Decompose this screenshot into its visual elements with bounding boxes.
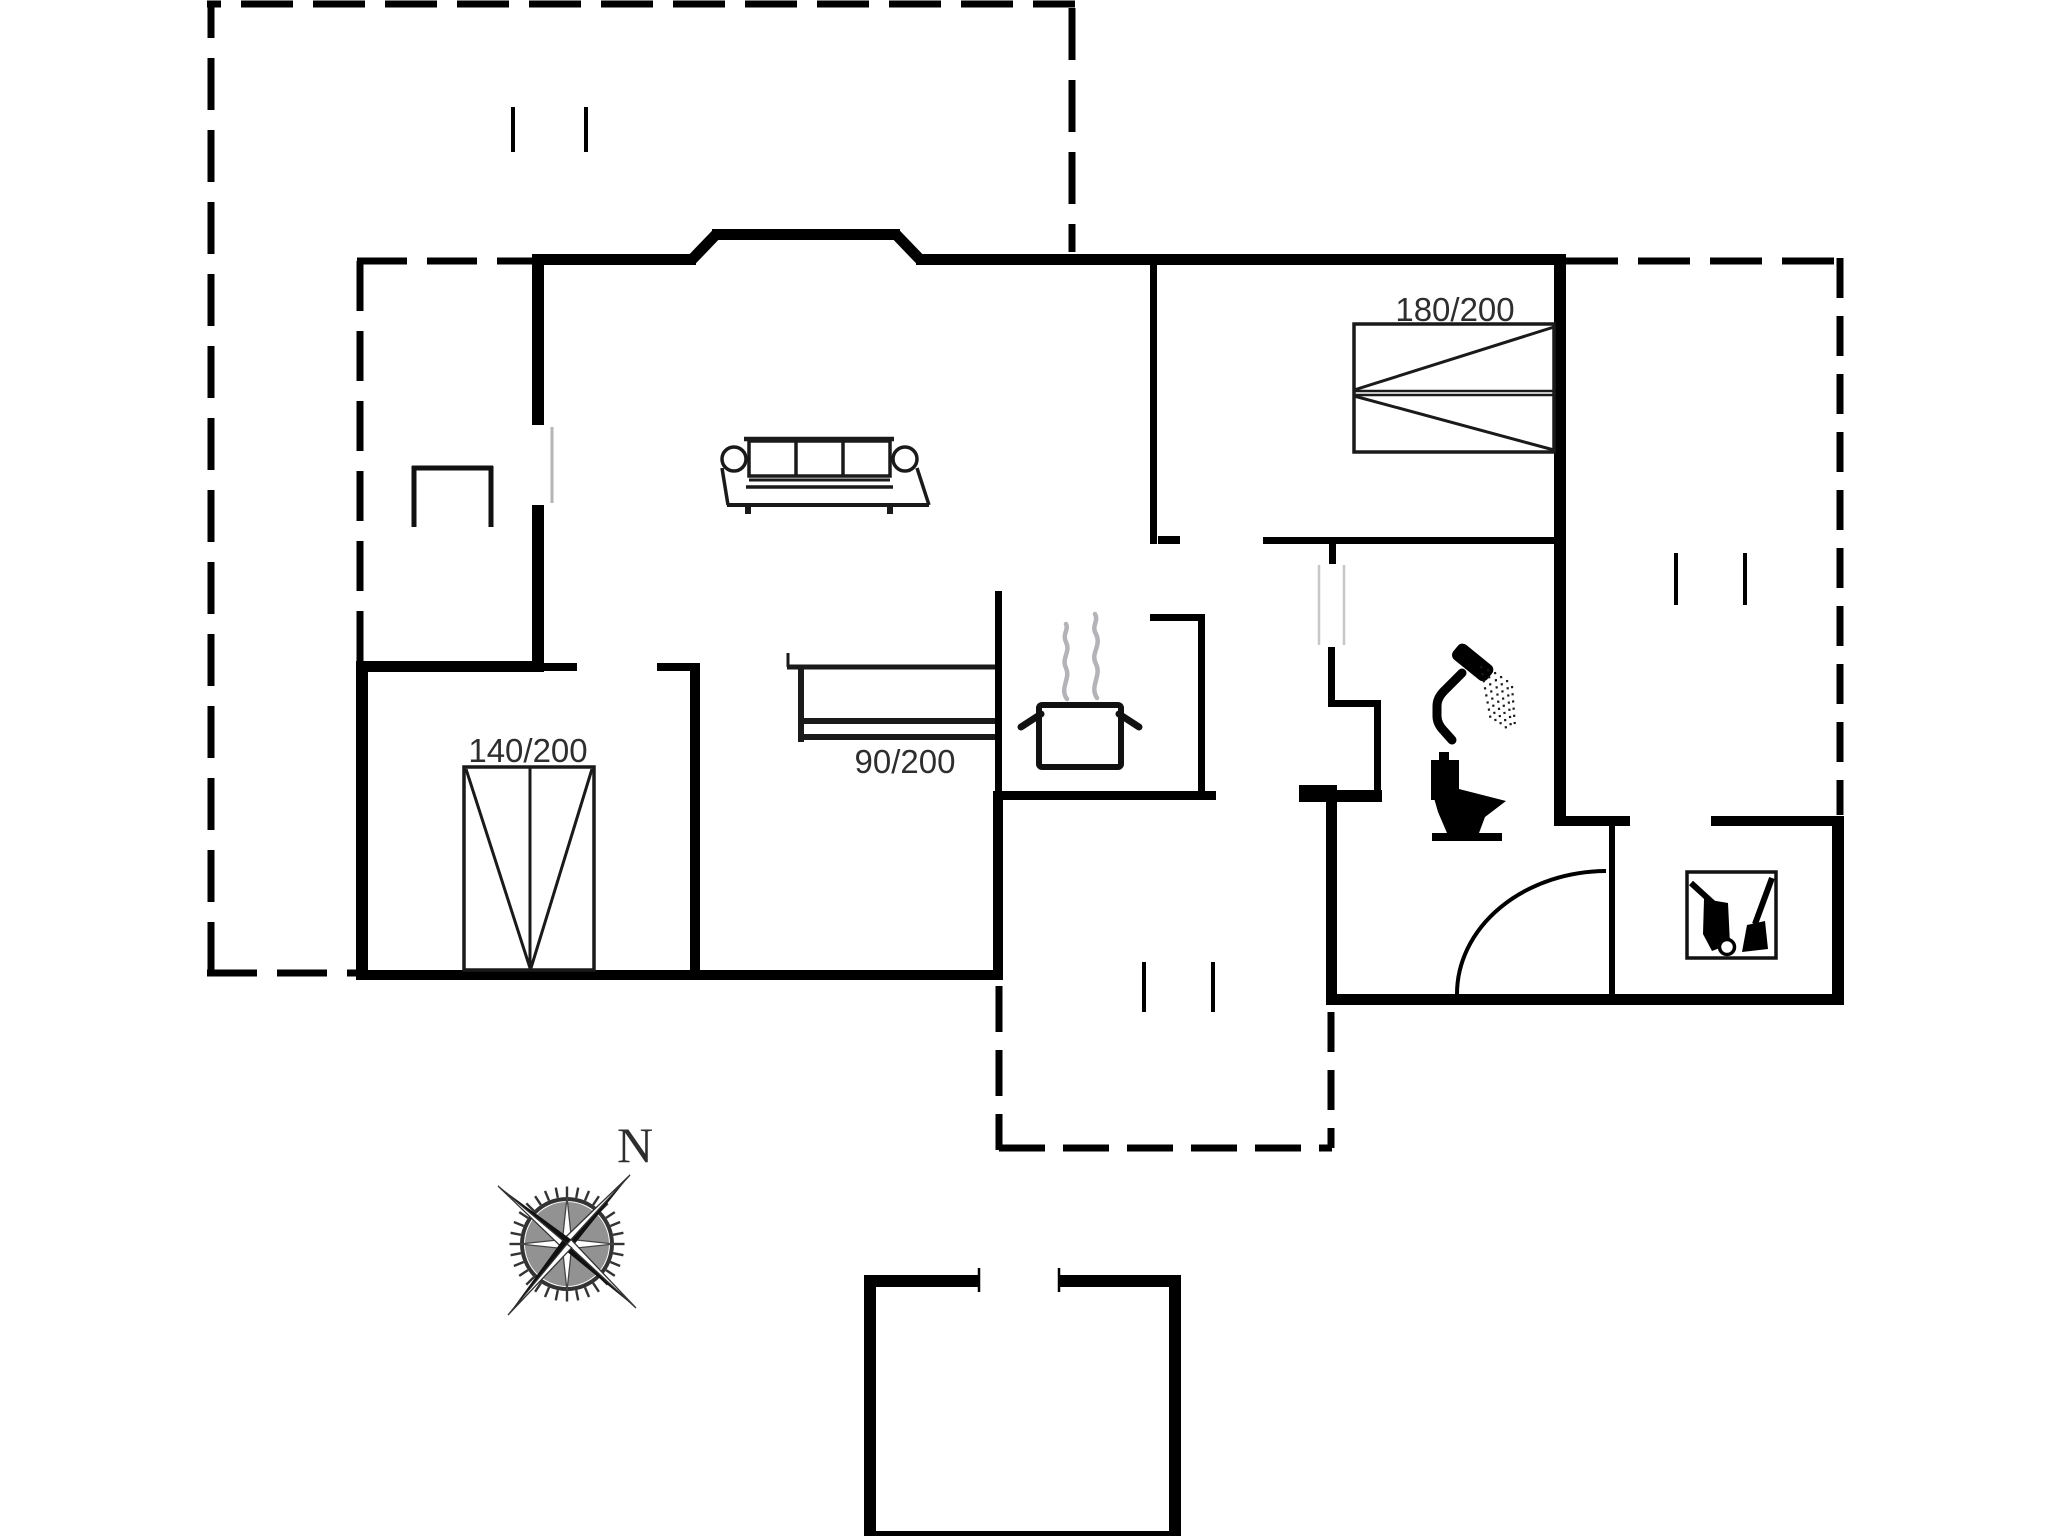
- svg-text:140/200: 140/200: [468, 732, 587, 769]
- svg-text:N: N: [617, 1117, 653, 1173]
- svg-text:90/200: 90/200: [855, 743, 956, 780]
- svg-text:180/200: 180/200: [1395, 291, 1514, 328]
